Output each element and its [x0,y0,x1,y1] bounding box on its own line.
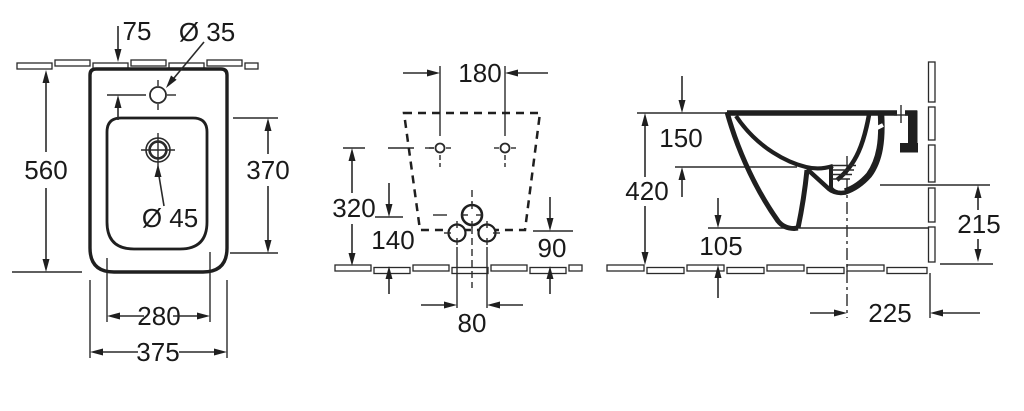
dim-label-180: 180 [458,58,501,88]
drain-hole-front [461,202,483,228]
fixing-hole-right [479,221,501,245]
dim-label-90: 90 [538,233,567,263]
side-view: 420 150 105 215 [607,62,1001,328]
front-edge [727,112,798,229]
dim-label-150: 150 [659,123,702,153]
dim-total-width: 375 [90,337,227,367]
dim-label-560: 560 [24,155,67,185]
pedestal-back-edge [798,170,807,228]
drain-hole [141,133,175,167]
dim-underside-clearance: 105 [699,198,742,298]
dim-fixing-bolts-spacing: 80 [421,302,523,339]
back-outer-wall [845,114,881,192]
technical-drawing: 75 Ø 35 560 370 Ø 45 [0,0,1024,411]
dim-body-bottom-height: 90 [538,197,567,294]
mounting-hole-right [494,144,516,168]
dim-label-320: 320 [332,193,375,223]
floor-hatch [335,265,582,274]
front-view: 180 320 140 90 [332,58,582,338]
dim-drain-height: 140 [371,183,414,294]
taphole [150,80,176,110]
dim-label-225: 225 [868,298,911,328]
bidet-drawing-svg: 75 Ø 35 560 370 Ø 45 [0,0,1024,411]
dim-label-80: 80 [458,308,487,338]
mounting-hole-left [429,144,451,168]
dim-total-depth: 560 [24,70,67,272]
label-taphole-diameter: Ø 35 [163,17,235,90]
dim-mounting-holes-spacing: 180 [403,58,548,88]
dim-label-375: 375 [136,337,179,367]
dim-basin-length: 370 [246,118,289,253]
fixing-hole-left [444,221,466,245]
dim-label-dia45: Ø 45 [142,203,198,233]
dim-label-215: 215 [957,209,1000,239]
basin-bowl-curve [736,116,833,168]
dim-label-dia35: Ø 35 [179,17,235,47]
dim-label-420: 420 [625,176,668,206]
dim-mounting-holes-height: 320 [332,148,375,266]
dim-label-105: 105 [699,231,742,261]
dim-label-140: 140 [371,225,414,255]
dim-label-75: 75 [123,16,152,46]
dim-drain-axis-to-wall: 225 [810,298,980,328]
mounting-flange-foot [900,143,918,153]
wall-hatch [929,62,936,262]
floor-hatch [607,265,927,274]
underside-to-trap [807,169,846,193]
dim-basin-width: 280 [107,301,210,331]
label-drain-diameter: Ø 45 [142,164,198,233]
top-view: 75 Ø 35 560 370 Ø 45 [12,16,290,367]
dim-label-370: 370 [246,155,289,185]
dim-wall-outlet-height: 215 [957,185,1000,262]
